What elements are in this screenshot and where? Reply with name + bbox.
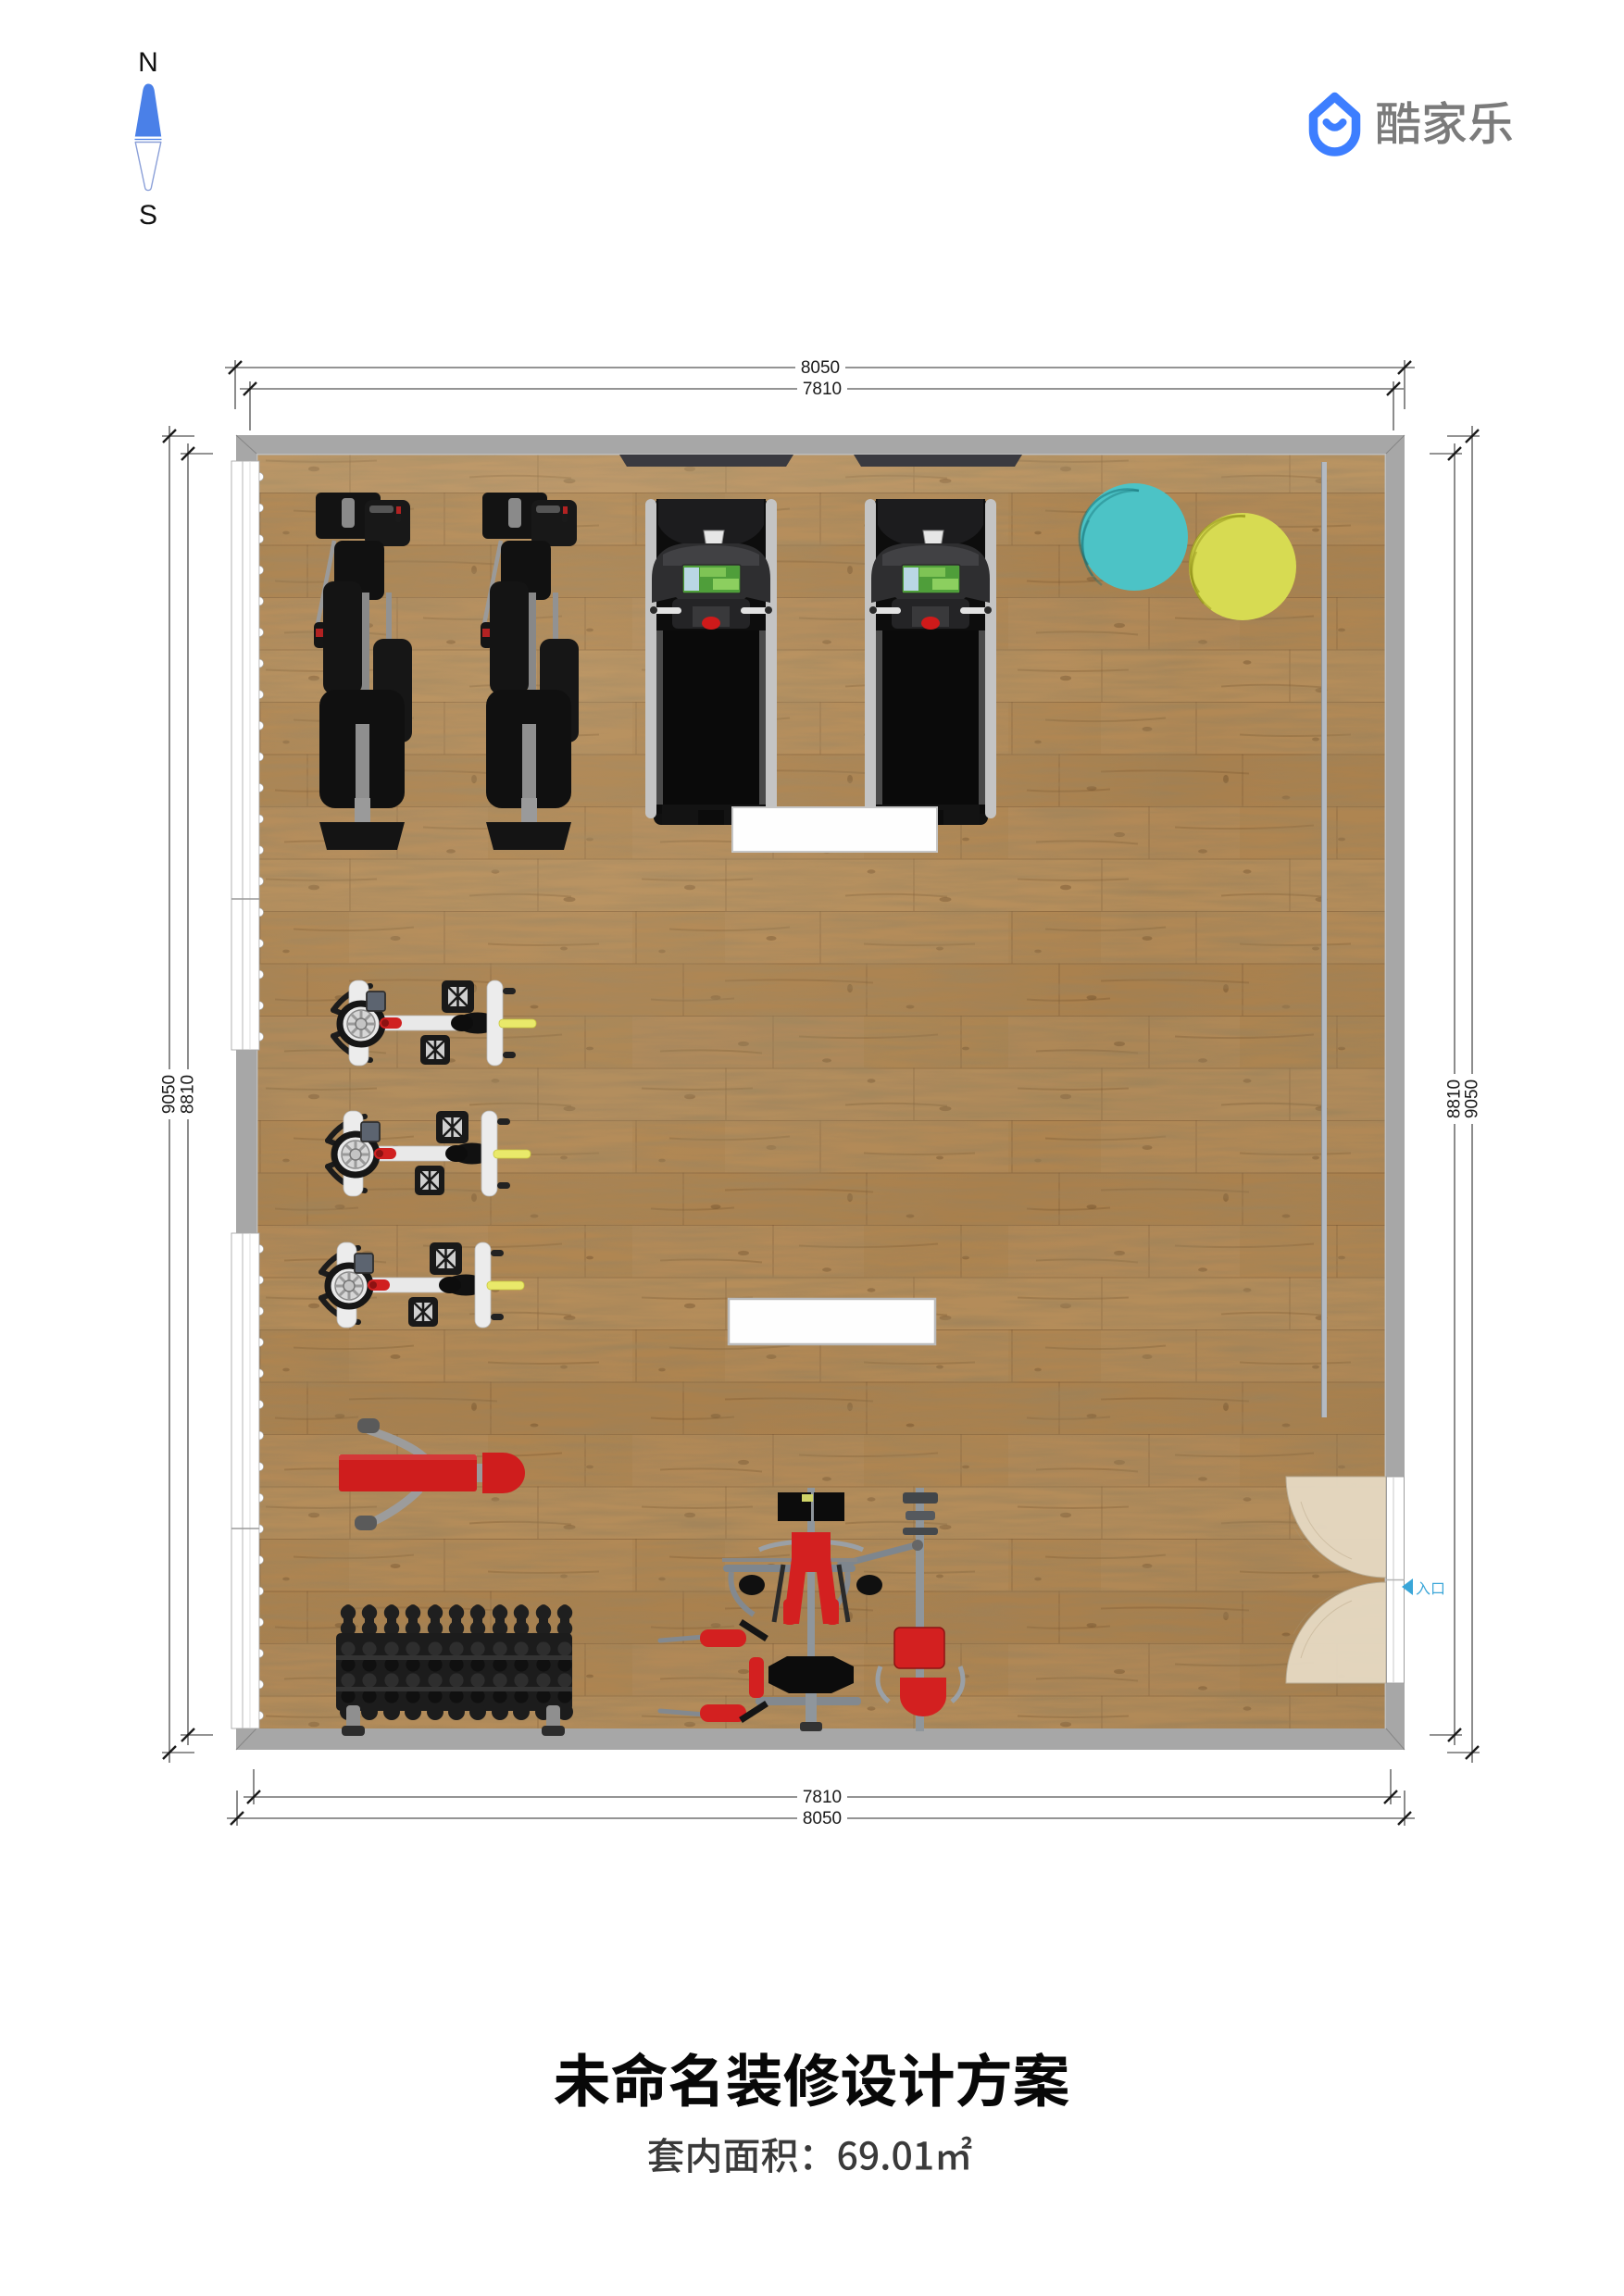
svg-text:8810: 8810 <box>1445 1079 1465 1118</box>
svg-text:8050: 8050 <box>801 358 840 378</box>
svg-text:7810: 7810 <box>803 380 842 399</box>
svg-text:8050: 8050 <box>803 1809 842 1828</box>
svg-text:7810: 7810 <box>803 1788 842 1807</box>
svg-text:9050: 9050 <box>1463 1079 1482 1118</box>
svg-text:S: S <box>139 200 157 231</box>
svg-text:N: N <box>138 47 158 78</box>
svg-text:9050: 9050 <box>160 1075 180 1114</box>
svg-text:8810: 8810 <box>179 1075 198 1114</box>
